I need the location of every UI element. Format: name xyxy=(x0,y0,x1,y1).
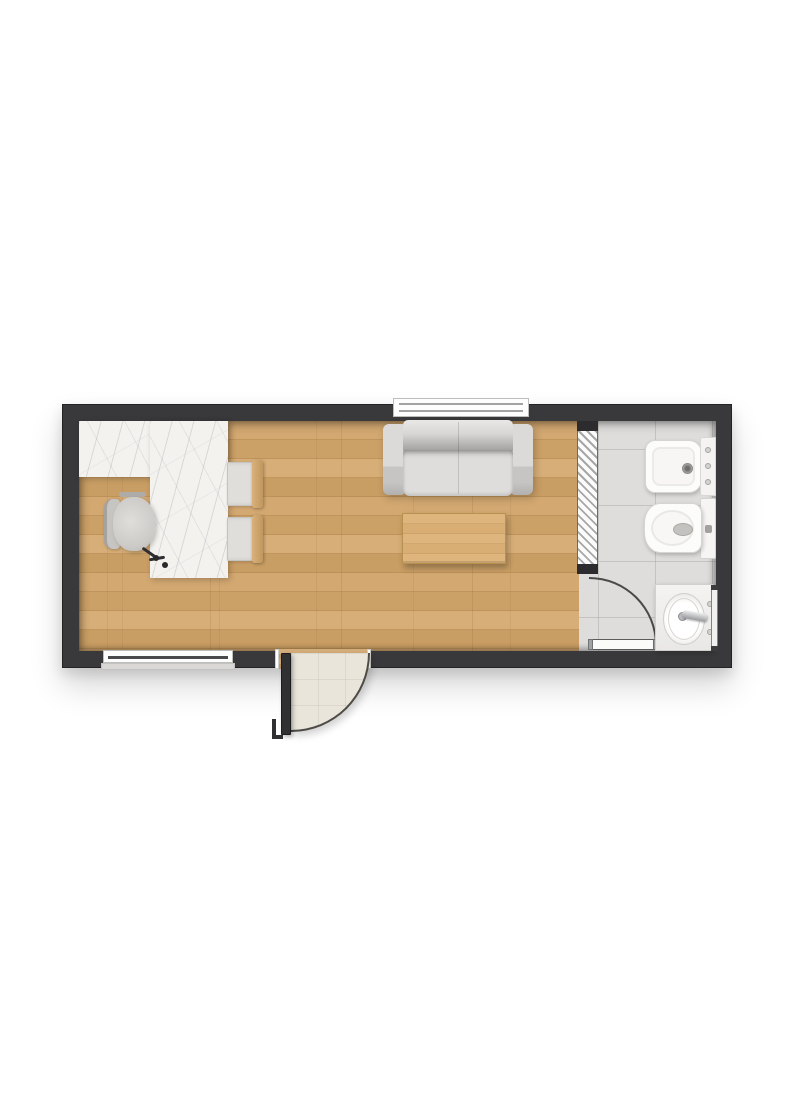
page: { "scene": { "type": "architectural floo… xyxy=(0,0,794,1097)
bidet xyxy=(645,440,702,493)
sofa-seat-cushions xyxy=(403,450,513,496)
sink-vanity xyxy=(655,584,713,651)
marble-counter-side-slab xyxy=(150,421,228,578)
coffee-table xyxy=(402,513,506,564)
entry-door-jamb-left xyxy=(275,649,279,669)
window-bottom xyxy=(103,650,233,663)
sofa xyxy=(383,420,533,497)
bathroom-door-leaf xyxy=(588,639,658,650)
mirror-cap xyxy=(711,585,718,590)
window-sill xyxy=(101,663,235,670)
bidet-wall-deck xyxy=(700,437,716,496)
entry-door-leaf xyxy=(281,653,291,735)
entry-door-swing xyxy=(291,653,370,732)
counter-chair-backrest xyxy=(252,460,263,508)
toilet-tank xyxy=(700,498,716,559)
partition-cap-bottom xyxy=(577,564,598,574)
bidet-knob xyxy=(705,463,711,469)
floor-plan xyxy=(62,404,732,668)
sofa-armrest-left xyxy=(383,424,405,495)
bidet-knob xyxy=(705,479,711,485)
entry-door-handle xyxy=(272,735,283,739)
office-chair-caster xyxy=(162,562,168,568)
toilet xyxy=(644,503,702,553)
sofa-back-cushions xyxy=(403,420,513,451)
window-top xyxy=(393,398,529,417)
window-glazing-line xyxy=(399,403,523,405)
office-chair-seat xyxy=(113,497,155,551)
counter-chair-backrest xyxy=(252,515,263,563)
bidet-knob xyxy=(705,447,711,453)
door-hinge-cap xyxy=(588,639,593,650)
partition-cap-top xyxy=(577,421,598,431)
partition-wall xyxy=(577,421,598,574)
office-chair-caster xyxy=(153,555,159,561)
sofa-armrest-right xyxy=(511,424,533,495)
toilet-flush-button xyxy=(705,525,712,533)
window-glazing-line xyxy=(108,656,228,659)
window-glazing-line xyxy=(399,410,523,412)
mirror-cap xyxy=(711,646,718,651)
bidet-drain xyxy=(682,463,693,474)
toilet-water xyxy=(673,523,693,536)
mirror-panel xyxy=(711,585,718,651)
